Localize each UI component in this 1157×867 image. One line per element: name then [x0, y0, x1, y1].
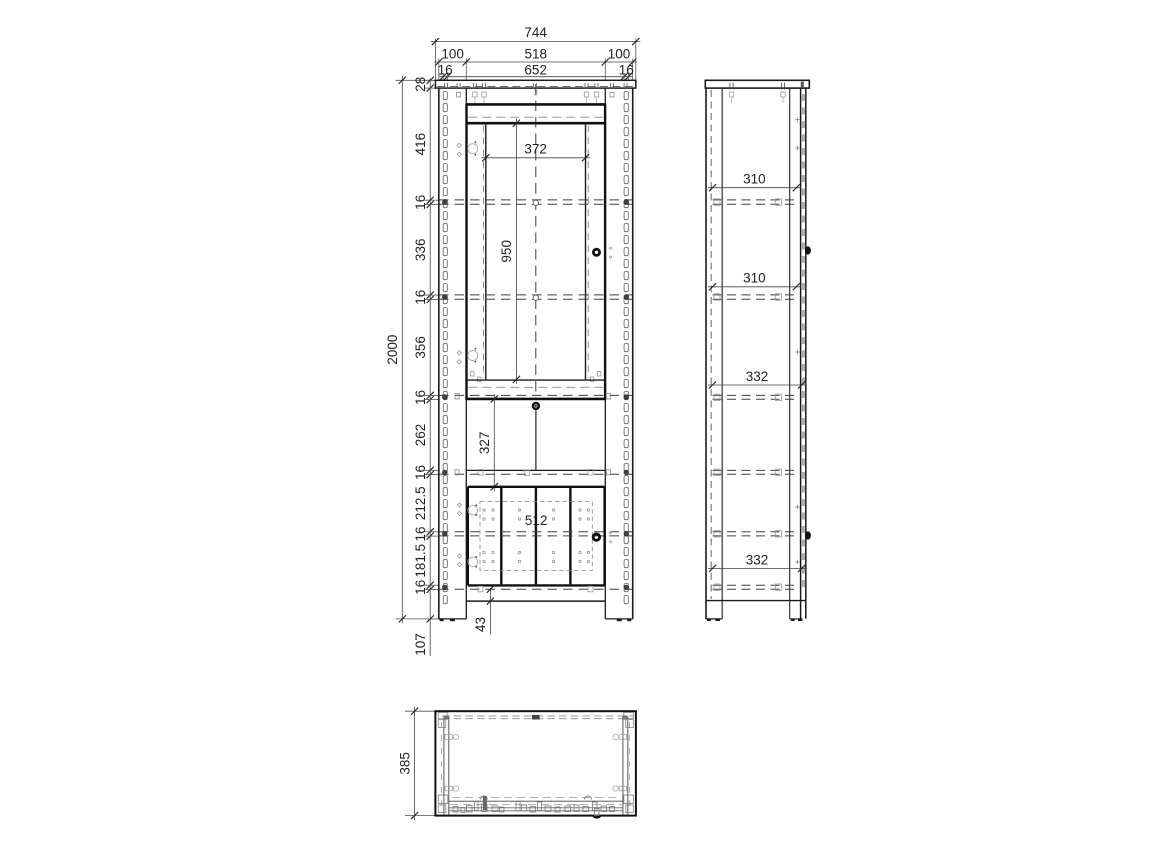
svg-text:100: 100 — [441, 47, 464, 62]
svg-text:332: 332 — [746, 552, 769, 567]
svg-text:652: 652 — [524, 62, 547, 77]
svg-text:950: 950 — [499, 240, 514, 263]
svg-text:372: 372 — [524, 142, 547, 157]
svg-text:43: 43 — [473, 617, 488, 632]
svg-text:16: 16 — [413, 390, 428, 405]
svg-text:16: 16 — [413, 195, 428, 210]
svg-text:327: 327 — [477, 432, 492, 455]
svg-text:212.5: 212.5 — [413, 486, 428, 520]
svg-text:356: 356 — [413, 336, 428, 359]
svg-text:16: 16 — [413, 465, 428, 480]
svg-text:2000: 2000 — [385, 335, 400, 365]
svg-text:16: 16 — [413, 580, 428, 595]
svg-text:16: 16 — [413, 290, 428, 305]
svg-text:16: 16 — [619, 62, 634, 77]
svg-text:310: 310 — [743, 271, 766, 286]
svg-text:416: 416 — [413, 133, 428, 156]
svg-text:310: 310 — [743, 172, 766, 187]
svg-text:744: 744 — [524, 25, 547, 40]
svg-text:518: 518 — [525, 47, 548, 62]
svg-text:107: 107 — [413, 633, 428, 656]
svg-text:262: 262 — [413, 424, 428, 447]
svg-text:336: 336 — [413, 239, 428, 262]
svg-text:100: 100 — [608, 47, 631, 62]
svg-text:332: 332 — [746, 369, 769, 384]
svg-text:28: 28 — [413, 77, 428, 92]
svg-text:385: 385 — [397, 752, 412, 775]
svg-text:181.5: 181.5 — [413, 544, 428, 578]
svg-text:16: 16 — [438, 62, 453, 77]
svg-text:16: 16 — [413, 526, 428, 541]
